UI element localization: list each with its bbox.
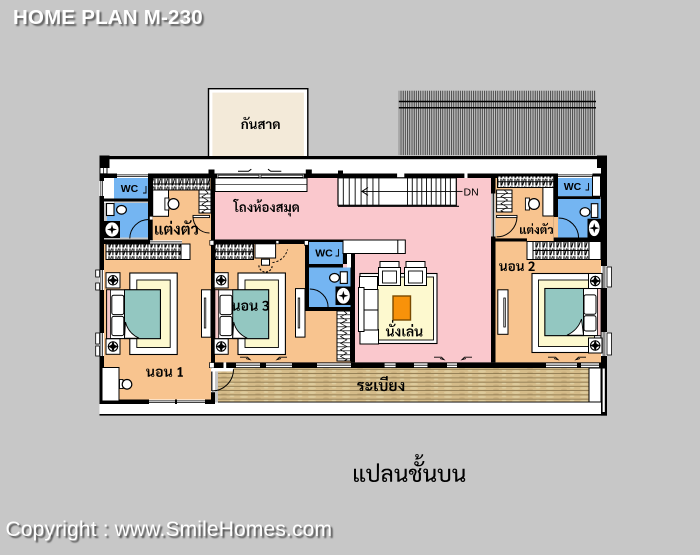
svg-text:WC: WC	[564, 181, 582, 193]
svg-text:DN: DN	[464, 186, 479, 198]
svg-text:Copyright : www.SmileHomes.com: Copyright : www.SmileHomes.com	[6, 518, 333, 541]
svg-text:WC: WC	[315, 248, 333, 260]
svg-text:HOME PLAN M-230: HOME PLAN M-230	[13, 6, 203, 29]
svg-text:WC: WC	[121, 183, 139, 195]
